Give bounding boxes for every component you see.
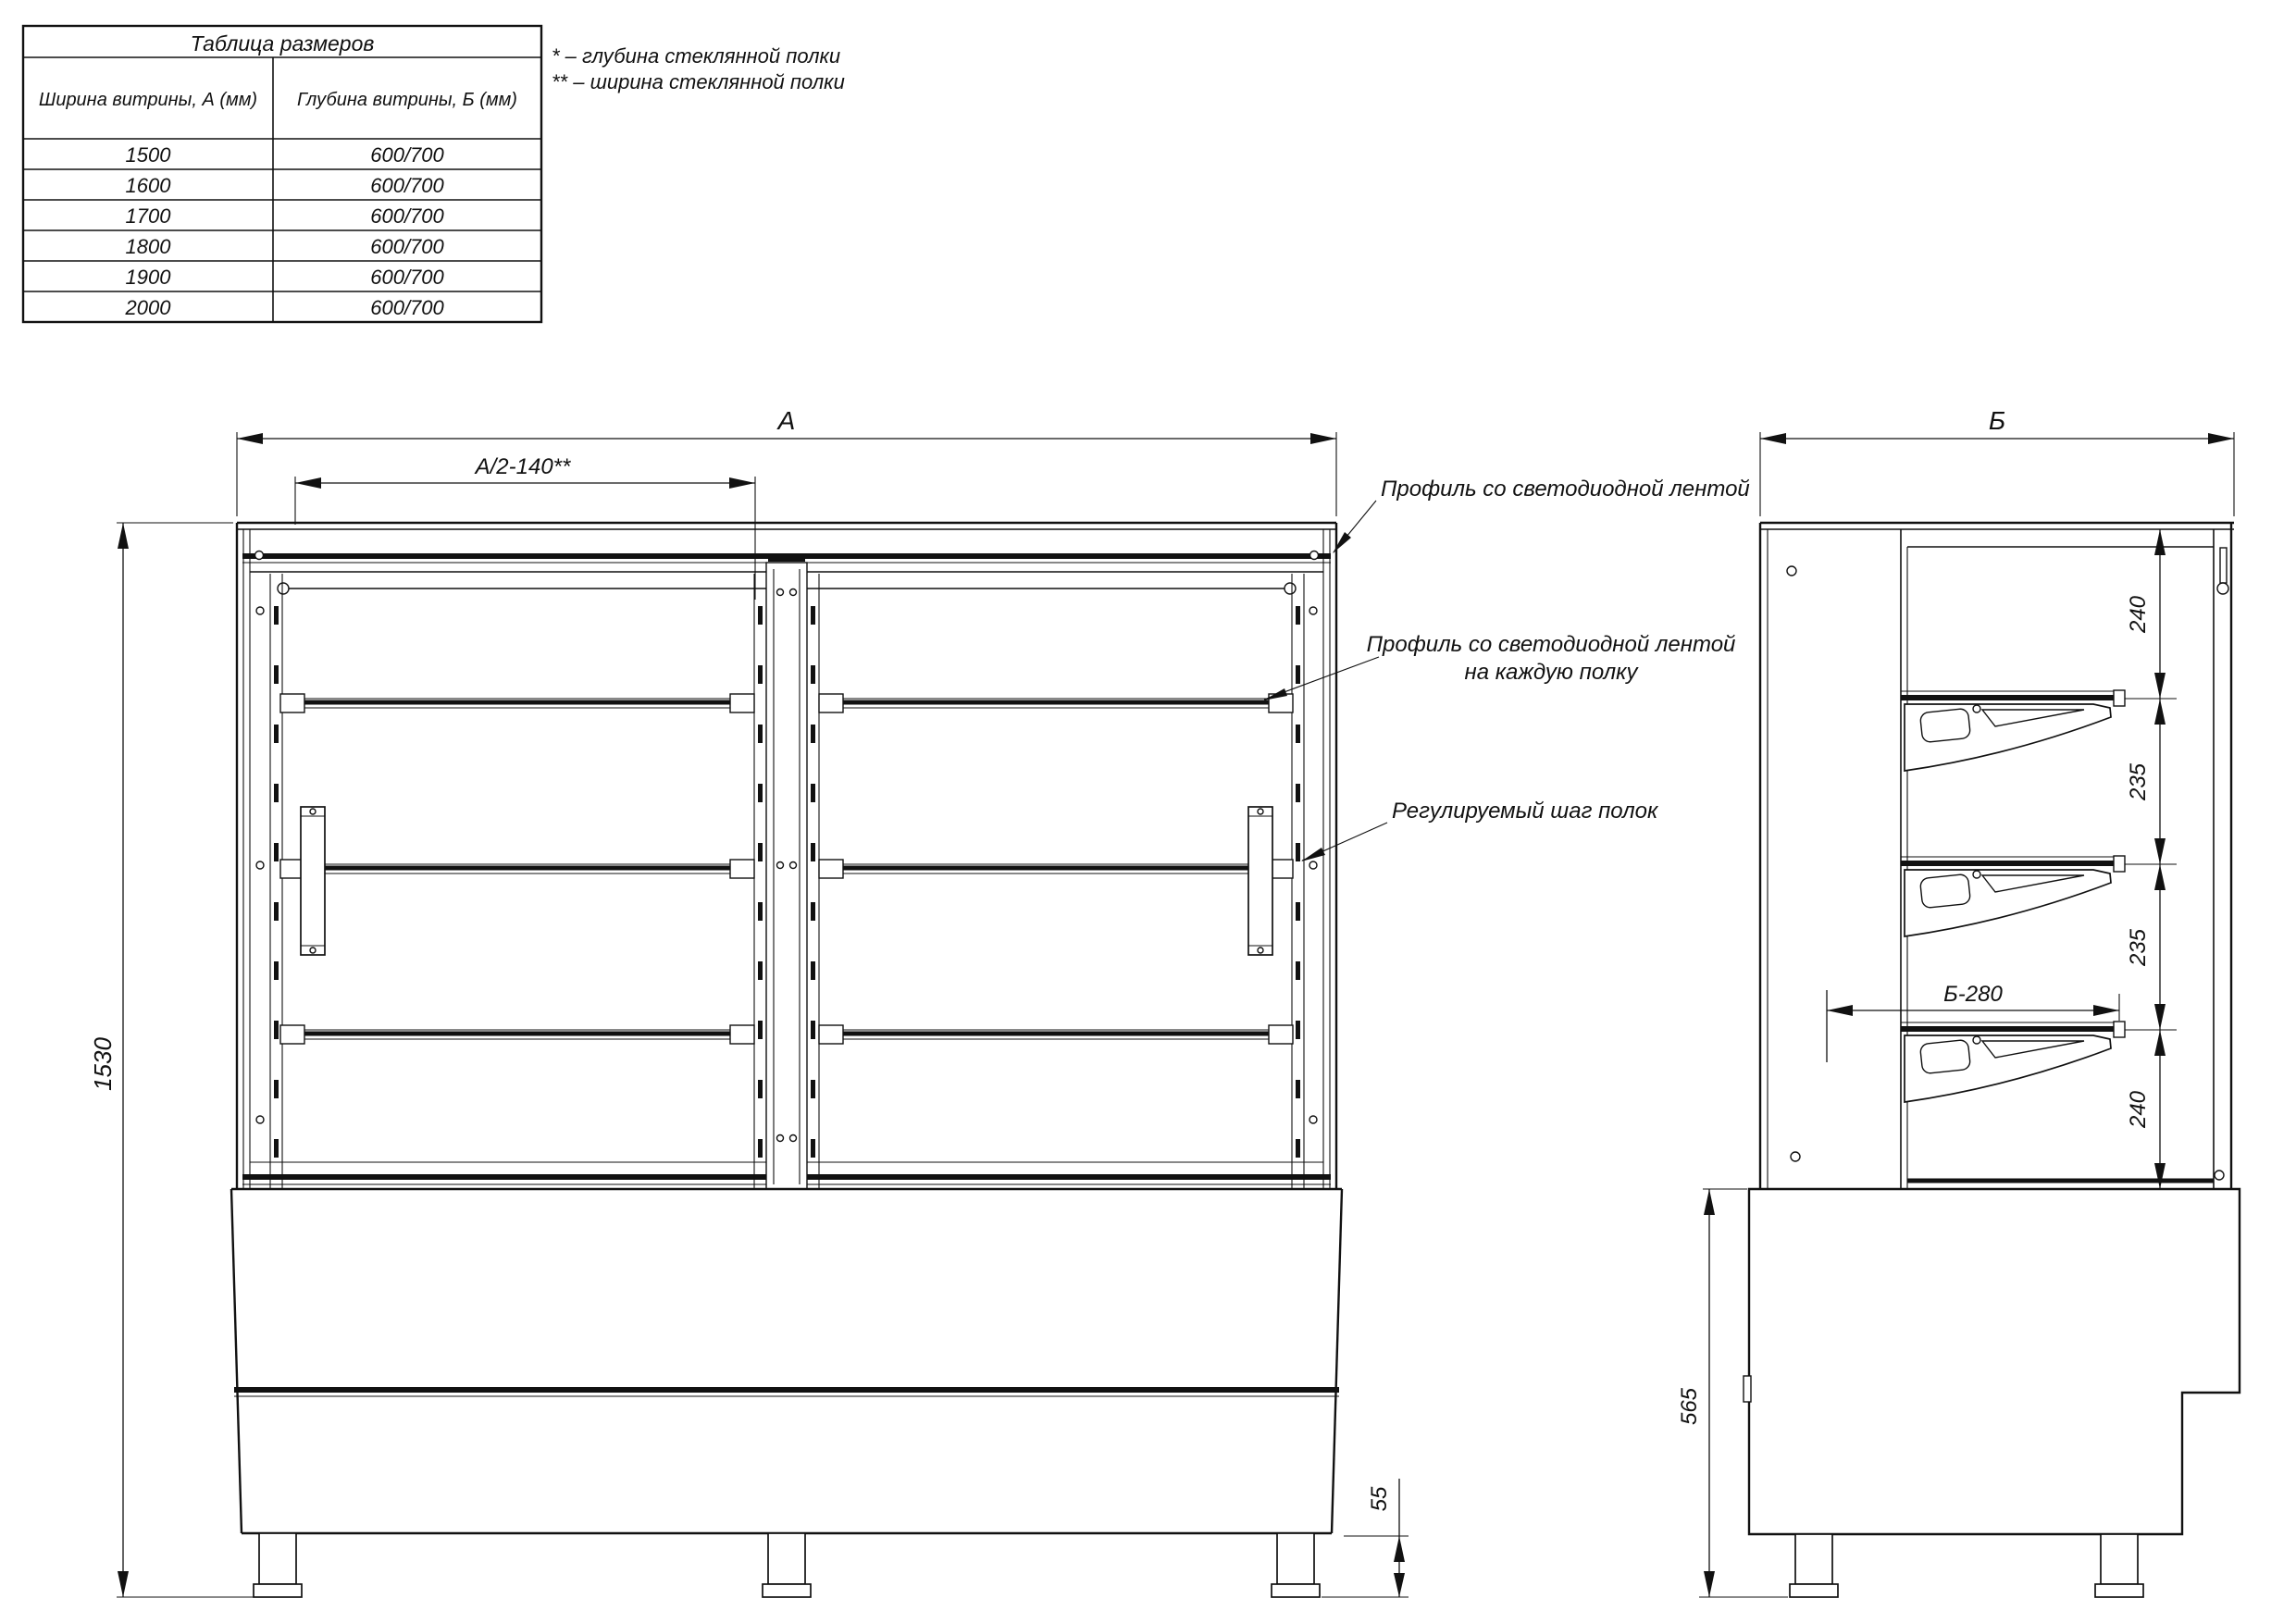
leg-foot bbox=[1272, 1584, 1320, 1597]
col-header-width: Ширина витрины, А (мм) bbox=[39, 90, 257, 110]
side-view: Б bbox=[1677, 406, 2240, 1597]
table-row: 1700 600/700 bbox=[126, 204, 445, 228]
shelf-clamp bbox=[280, 1025, 304, 1044]
canopy-end-cap bbox=[278, 583, 289, 594]
callout-shelf-step: Регулируемый шаг полок bbox=[1301, 799, 1659, 861]
canopy-end-cap bbox=[1285, 583, 1296, 594]
base-cabinet bbox=[231, 1189, 1342, 1533]
showcase-drawing: Таблица размеров Ширина витрины, А (мм) … bbox=[0, 0, 2296, 1623]
shelf-bracket-1 bbox=[1901, 690, 2125, 771]
leg bbox=[1795, 1534, 1832, 1584]
svg-text:А/2-140**: А/2-140** bbox=[474, 454, 571, 479]
leg-foot bbox=[763, 1584, 811, 1597]
side-base-cabinet bbox=[1744, 1189, 2240, 1597]
svg-text:1700: 1700 bbox=[126, 204, 172, 228]
leg bbox=[768, 1533, 805, 1584]
table-row: 1800 600/700 bbox=[126, 235, 445, 258]
leg-foot bbox=[254, 1584, 302, 1597]
svg-text:2000: 2000 bbox=[125, 296, 172, 319]
dim-base-height: 565 bbox=[1677, 1189, 1788, 1597]
table-row: 1500 600/700 bbox=[126, 143, 445, 167]
svg-text:Профиль со светодиодной лентой: Профиль со светодиодной лентой bbox=[1367, 632, 1736, 657]
svg-text:1800: 1800 bbox=[126, 235, 172, 258]
table-row: 2000 600/700 bbox=[125, 296, 445, 319]
svg-text:1500: 1500 bbox=[126, 143, 172, 167]
dim-shelf-steps: 240 235 235 240 bbox=[2125, 529, 2177, 1189]
footnotes: * – глубина стеклянной полки ** – ширина… bbox=[552, 44, 845, 93]
dim-overall-depth: Б bbox=[1760, 406, 2234, 516]
callout-led-canopy: Профиль со светодиодной лентой bbox=[1333, 477, 1750, 553]
leg bbox=[2101, 1534, 2138, 1584]
svg-text:565: 565 bbox=[1677, 1387, 1702, 1425]
svg-text:1900: 1900 bbox=[126, 266, 172, 289]
technical-drawing-page: Таблица размеров Ширина витрины, А (мм) … bbox=[0, 0, 2296, 1623]
leg bbox=[1277, 1533, 1314, 1584]
shelf-clamp bbox=[280, 694, 304, 712]
dim-foot-height: 55 bbox=[1322, 1479, 1409, 1597]
shelf-clamp bbox=[730, 860, 754, 878]
leg-foot bbox=[1790, 1584, 1838, 1597]
svg-text:1530: 1530 bbox=[89, 1037, 117, 1091]
shelf-bracket-2 bbox=[1901, 856, 2125, 936]
svg-text:235: 235 bbox=[2126, 762, 2151, 801]
shelf-clamp bbox=[730, 1025, 754, 1044]
size-table: Таблица размеров Ширина витрины, А (мм) … bbox=[23, 26, 541, 322]
left-wall bbox=[237, 523, 282, 1189]
svg-text:55: 55 bbox=[1367, 1486, 1392, 1511]
col-header-depth: Глубина витрины, Б (мм) bbox=[297, 90, 517, 110]
svg-text:600/700: 600/700 bbox=[370, 143, 444, 167]
shelf-clamp bbox=[819, 1025, 843, 1044]
dim-overall-width: А bbox=[237, 406, 1336, 516]
size-table-border bbox=[23, 26, 541, 322]
base-handle bbox=[1744, 1376, 1751, 1402]
svg-text:235: 235 bbox=[2126, 928, 2151, 967]
svg-text:А: А bbox=[776, 406, 796, 435]
svg-text:Профиль со светодиодной лентой: Профиль со светодиодной лентой bbox=[1381, 477, 1750, 502]
footnote-shelf-depth: * – глубина стеклянной полки bbox=[552, 44, 840, 68]
table-row: 1900 600/700 bbox=[126, 266, 445, 289]
svg-text:600/700: 600/700 bbox=[370, 174, 444, 197]
svg-text:600/700: 600/700 bbox=[370, 235, 444, 258]
dim-overall-height: 1530 bbox=[89, 523, 255, 1597]
svg-text:600/700: 600/700 bbox=[370, 266, 444, 289]
front-view: А А/2-140** bbox=[89, 406, 1750, 1597]
svg-text:Б: Б bbox=[1989, 406, 2005, 435]
svg-text:Регулируемый шаг полок: Регулируемый шаг полок bbox=[1392, 799, 1659, 824]
left-support-bar bbox=[301, 807, 325, 955]
svg-text:Б-280: Б-280 bbox=[1943, 982, 2003, 1007]
svg-text:240: 240 bbox=[2126, 1090, 2151, 1129]
right-support-bar bbox=[1248, 807, 1272, 955]
size-table-title: Таблица размеров bbox=[191, 31, 375, 56]
leg bbox=[259, 1533, 296, 1584]
leg-foot bbox=[2095, 1584, 2143, 1597]
callout-led-shelf: Профиль со светодиодной лентой на каждую… bbox=[1263, 632, 1735, 700]
shelf-clamp bbox=[1269, 1025, 1293, 1044]
shelf-clamp bbox=[819, 860, 843, 878]
svg-text:600/700: 600/700 bbox=[370, 204, 444, 228]
footnote-shelf-width: ** – ширина стеклянной полки bbox=[552, 70, 845, 93]
shelf-bracket-3 bbox=[1901, 1022, 2125, 1102]
dim-shelf-width: А/2-140** bbox=[295, 454, 755, 600]
svg-text:240: 240 bbox=[2126, 595, 2151, 634]
svg-text:1600: 1600 bbox=[126, 174, 172, 197]
legs bbox=[254, 1533, 1320, 1597]
shelf-clamp bbox=[730, 694, 754, 712]
table-row: 1600 600/700 bbox=[126, 174, 445, 197]
svg-text:600/700: 600/700 bbox=[370, 296, 444, 319]
shelf-clamp bbox=[819, 694, 843, 712]
svg-text:на каждую полку: на каждую полку bbox=[1464, 660, 1639, 685]
center-mullion bbox=[754, 555, 819, 1189]
